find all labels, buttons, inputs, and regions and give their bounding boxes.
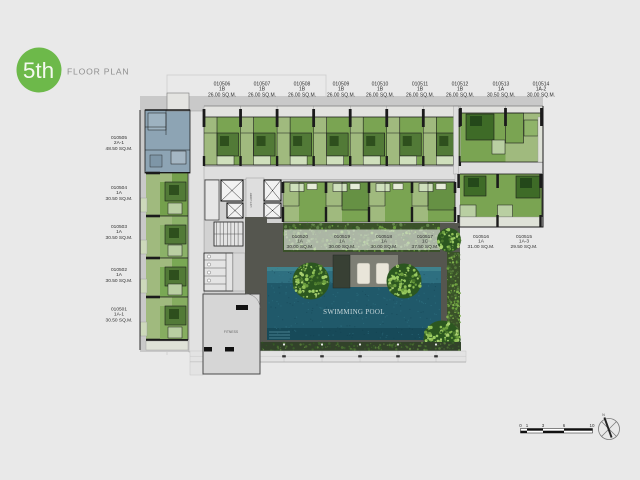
svg-text:LIFT LOBBY: LIFT LOBBY <box>249 192 253 207</box>
svg-text:1A-3: 1A-3 <box>519 239 529 245</box>
svg-text:26.00 SQ.M.: 26.00 SQ.M. <box>366 92 394 98</box>
svg-text:5th: 5th <box>23 58 54 83</box>
svg-text:31.00 SQ.M.: 31.00 SQ.M. <box>468 244 495 250</box>
svg-text:1A: 1A <box>297 239 304 245</box>
svg-text:1A: 1A <box>116 190 123 196</box>
svg-text:30.00 SQ.M.: 30.00 SQ.M. <box>371 244 398 250</box>
svg-text:26.00 SQ.M.: 26.00 SQ.M. <box>406 92 434 98</box>
svg-text:1A: 1A <box>116 229 123 235</box>
svg-text:30.50 SQ.M.: 30.50 SQ.M. <box>106 196 133 202</box>
svg-text:30.50 SQ.M.: 30.50 SQ.M. <box>106 235 133 241</box>
svg-text:1A: 1A <box>339 239 346 245</box>
svg-text:30.50 SQ.M.: 30.50 SQ.M. <box>487 92 515 98</box>
svg-text:26.00 SQ.M.: 26.00 SQ.M. <box>208 92 236 98</box>
svg-text:1A-1: 1A-1 <box>114 312 124 318</box>
svg-text:48.50 SQ.M.: 48.50 SQ.M. <box>106 146 133 152</box>
svg-text:26.00 SQ.M.: 26.00 SQ.M. <box>327 92 355 98</box>
svg-text:26.00 SQ.M.: 26.00 SQ.M. <box>288 92 316 98</box>
svg-text:FITNESS: FITNESS <box>224 330 239 334</box>
svg-text:10: 10 <box>589 423 595 428</box>
svg-text:FLOOR PLAN: FLOOR PLAN <box>67 67 129 77</box>
svg-text:SWIMMING POOL: SWIMMING POOL <box>323 308 385 316</box>
svg-text:30.00 SQ.M.: 30.00 SQ.M. <box>527 92 555 98</box>
svg-text:26.00 SQ.M.: 26.00 SQ.M. <box>248 92 276 98</box>
svg-text:1A: 1A <box>381 239 388 245</box>
svg-text:1C: 1C <box>422 239 429 245</box>
svg-text:30.50 SQ.M.: 30.50 SQ.M. <box>106 317 133 323</box>
svg-text:1A: 1A <box>116 272 123 278</box>
svg-text:30.00 SQ.M.: 30.00 SQ.M. <box>329 244 356 250</box>
svg-text:2A-1: 2A-1 <box>114 140 124 146</box>
svg-text:30.00 SQ.M.: 30.00 SQ.M. <box>287 244 314 250</box>
svg-text:26.00 SQ.M.: 26.00 SQ.M. <box>446 92 474 98</box>
svg-text:37.50 SQ.M.: 37.50 SQ.M. <box>412 244 439 250</box>
svg-text:30.50 SQ.M.: 30.50 SQ.M. <box>106 278 133 284</box>
svg-text:1A: 1A <box>478 239 485 245</box>
svg-text:29.50 SQ.M.: 29.50 SQ.M. <box>511 244 538 250</box>
